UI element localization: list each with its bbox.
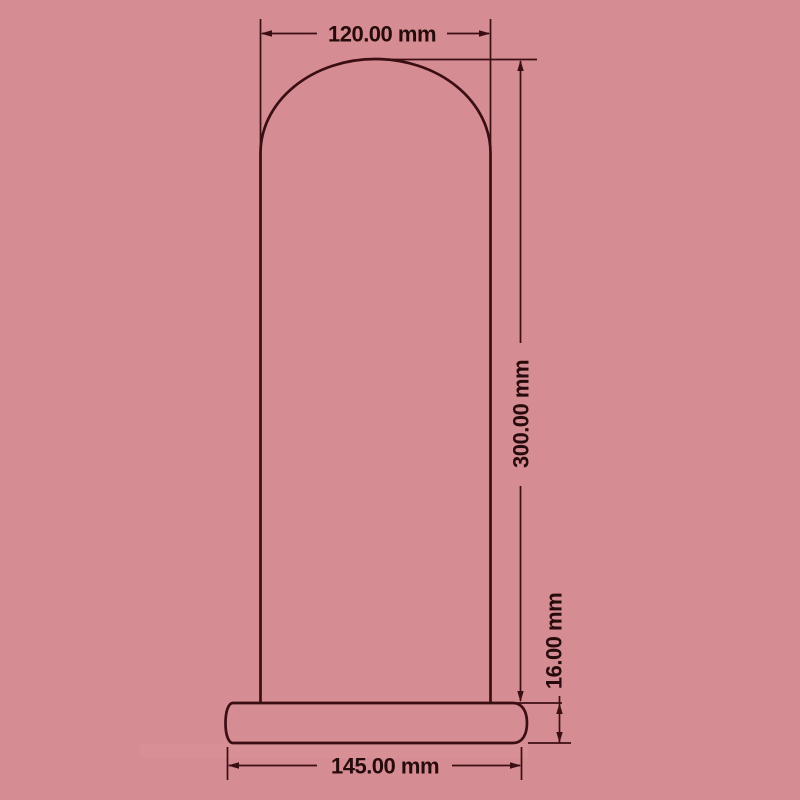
arrowhead-right <box>479 30 491 36</box>
arrowhead-top <box>556 703 562 714</box>
arrowhead-left <box>228 762 240 768</box>
dimension-overall-height: 300.00 mm <box>379 60 537 703</box>
dimension-label-base-thickness: 16.00 mm <box>542 593 567 689</box>
technical-drawing: 120.00 mm 300.00 mm 16.00 mm <box>0 0 800 800</box>
object-outline <box>226 59 528 743</box>
base-plate-outline <box>226 703 528 743</box>
dimension-label-top-width: 120.00 mm <box>328 22 436 47</box>
dimension-base-thickness: 16.00 mm <box>513 593 571 743</box>
arrowhead-bottom <box>517 691 523 702</box>
arrowhead-top <box>517 60 523 71</box>
arrowhead-bottom <box>556 732 562 743</box>
background-tint-dome-interior <box>262 61 489 155</box>
arrowhead-left <box>261 30 273 36</box>
dimension-label-overall-height: 300.00 mm <box>509 360 534 468</box>
drawing-canvas: 120.00 mm 300.00 mm 16.00 mm <box>0 0 800 800</box>
dome-outline <box>261 59 491 703</box>
arrowhead-right <box>510 762 522 768</box>
dimension-label-base-width: 145.00 mm <box>331 754 439 779</box>
